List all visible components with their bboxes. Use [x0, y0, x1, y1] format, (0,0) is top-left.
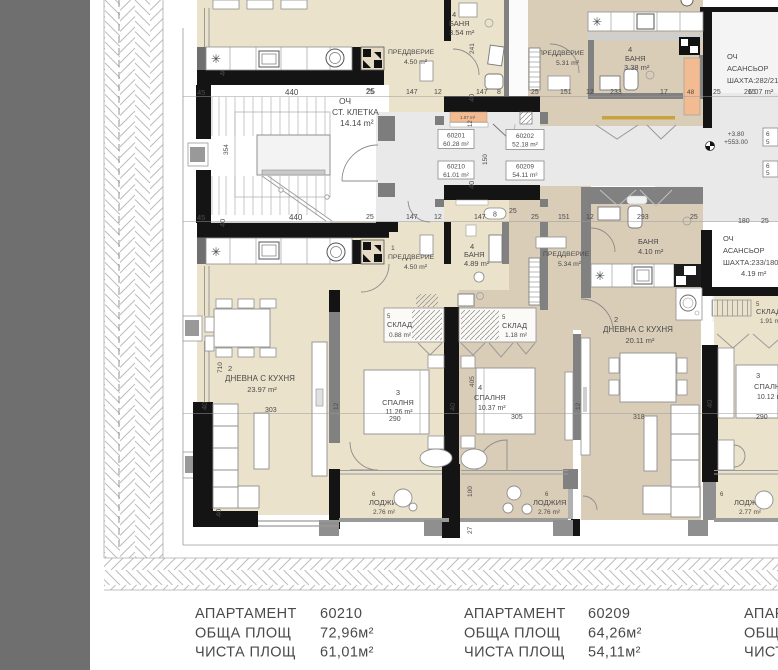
svg-text:12: 12: [434, 89, 442, 96]
svg-text:25: 25: [761, 218, 769, 225]
svg-text:ПРЕДДВЕРИЕ: ПРЕДДВЕРИЕ: [388, 254, 435, 261]
svg-text:БАНЯ: БАНЯ: [625, 54, 646, 63]
svg-text:25: 25: [509, 208, 517, 215]
svg-text:20.11 m²: 20.11 m²: [625, 336, 655, 345]
svg-text:0.88 m²: 0.88 m²: [389, 332, 412, 339]
svg-text:4: 4: [452, 10, 456, 19]
svg-text:150: 150: [482, 154, 489, 165]
svg-text:25: 25: [366, 89, 374, 96]
svg-text:60209: 60209: [516, 164, 534, 171]
svg-text:147: 147: [476, 89, 488, 96]
svg-text:4.50 m²: 4.50 m²: [404, 59, 428, 66]
svg-text:4.19 m²: 4.19 m²: [741, 269, 767, 278]
svg-text:40: 40: [218, 219, 227, 227]
svg-text:АПАРТАМЕНТ: АПАРТАМЕНТ: [195, 606, 297, 622]
svg-text:СПАЛНЯ: СПАЛНЯ: [474, 393, 506, 402]
svg-text:СПАЛНЯ: СПАЛНЯ: [754, 382, 778, 391]
svg-text:215: 215: [744, 89, 756, 96]
svg-text:ДНЕВНА С КУХНЯ: ДНЕВНА С КУХНЯ: [603, 325, 673, 334]
svg-text:290: 290: [756, 414, 768, 421]
svg-text:305: 305: [511, 414, 523, 421]
svg-text:3.38 m²: 3.38 m²: [624, 63, 650, 72]
svg-text:290: 290: [389, 416, 401, 423]
svg-text:СПАЛНЯ: СПАЛНЯ: [382, 398, 414, 407]
svg-text:1.91 m²: 1.91 m²: [760, 318, 778, 325]
svg-text:✳: ✳: [595, 269, 605, 283]
svg-text:25: 25: [713, 89, 721, 96]
svg-text:ЧИСТА ПЛОЩ: ЧИСТА ПЛОЩ: [464, 645, 565, 661]
svg-text:ШАХТА:233/180: ШАХТА:233/180: [723, 258, 778, 267]
svg-text:72,96м²: 72,96м²: [320, 626, 374, 642]
svg-text:АПАРТАМЕНТ: АПАРТАМЕНТ: [464, 606, 566, 622]
svg-text:45: 45: [197, 213, 205, 222]
svg-text:БАНЯ: БАНЯ: [464, 250, 485, 259]
svg-text:4: 4: [628, 45, 632, 54]
svg-text:60210: 60210: [320, 606, 362, 622]
svg-text:25: 25: [690, 214, 698, 221]
svg-text:ОБЩА ПЛОЩ: ОБЩА ПЛОЩ: [195, 626, 292, 642]
svg-text:25: 25: [531, 214, 539, 221]
svg-text:147: 147: [406, 89, 418, 96]
svg-text:27: 27: [467, 526, 474, 534]
svg-text:ОЧ: ОЧ: [727, 52, 738, 61]
svg-text:100: 100: [467, 486, 474, 497]
svg-text:180: 180: [738, 218, 750, 225]
svg-text:54,11м²: 54,11м²: [588, 645, 641, 661]
svg-text:5.34 m²: 5.34 m²: [558, 261, 582, 268]
svg-text:40: 40: [214, 509, 223, 517]
svg-text:2.76 m²: 2.76 m²: [373, 509, 396, 516]
svg-text:23.97 m²: 23.97 m²: [247, 385, 277, 394]
svg-text:АСАНСЬОР: АСАНСЬОР: [727, 64, 769, 73]
svg-text:318: 318: [633, 414, 645, 421]
svg-text:СКЛАД: СКЛАД: [502, 321, 527, 330]
svg-text:БАНЯ: БАНЯ: [449, 19, 470, 28]
svg-text:+553.00: +553.00: [724, 139, 748, 146]
svg-text:5.31 m²: 5.31 m²: [556, 60, 580, 67]
svg-text:4: 4: [478, 383, 482, 392]
svg-text:233: 233: [610, 89, 622, 96]
svg-text:440: 440: [285, 88, 299, 97]
svg-text:147: 147: [406, 214, 418, 221]
svg-text:1: 1: [391, 245, 395, 252]
svg-text:25: 25: [531, 89, 539, 96]
svg-text:11.26 m²: 11.26 m²: [385, 409, 413, 416]
svg-text:40: 40: [705, 400, 714, 408]
svg-text:60.28 m²: 60.28 m²: [443, 141, 469, 148]
svg-text:40: 40: [467, 181, 476, 189]
svg-text:10.12 m²: 10.12 m²: [757, 394, 778, 401]
svg-text:✳: ✳: [592, 15, 602, 29]
svg-text:ОБЩА ПЛОЩ: ОБЩА ПЛОЩ: [744, 626, 778, 642]
svg-text:ЧИСТА ПЛОЩ: ЧИСТА ПЛОЩ: [195, 645, 296, 661]
svg-text:5: 5: [766, 139, 770, 146]
svg-text:61,01м²: 61,01м²: [320, 645, 374, 661]
svg-text:40: 40: [467, 94, 476, 102]
svg-text:60210: 60210: [447, 164, 465, 171]
svg-text:СКЛАД: СКЛАД: [387, 320, 412, 329]
svg-text:25: 25: [366, 214, 374, 221]
svg-text:1.18 m²: 1.18 m²: [505, 332, 528, 339]
svg-text:ОБЩА ПЛОЩ: ОБЩА ПЛОЩ: [464, 626, 561, 642]
svg-text:2: 2: [228, 364, 232, 373]
svg-text:ШАХТА:282/215: ШАХТА:282/215: [727, 76, 778, 85]
svg-text:60209: 60209: [588, 606, 630, 622]
svg-text:АПАРТАМЕНТ: АПАРТАМЕНТ: [744, 606, 778, 622]
svg-text:54.11 m²: 54.11 m²: [512, 172, 538, 179]
svg-text:12: 12: [586, 89, 594, 96]
svg-text:ЧИСТА ПЛОЩ: ЧИСТА ПЛОЩ: [744, 645, 778, 661]
svg-text:40: 40: [448, 403, 457, 411]
svg-text:40: 40: [200, 402, 209, 410]
svg-text:45: 45: [197, 88, 205, 97]
svg-text:4.89 m²: 4.89 m²: [464, 259, 490, 268]
svg-text:ПРЕДДВЕРИЕ: ПРЕДДВЕРИЕ: [538, 50, 585, 57]
svg-text:ДНЕВНА С КУХНЯ: ДНЕВНА С КУХНЯ: [225, 374, 295, 383]
svg-text:ПРЕДДВЕРИЕ: ПРЕДДВЕРИЕ: [543, 251, 590, 258]
svg-text:2.77 m²: 2.77 m²: [739, 509, 762, 516]
svg-text:60202: 60202: [516, 133, 534, 140]
svg-text:17: 17: [660, 89, 668, 96]
svg-text:293: 293: [637, 214, 649, 221]
svg-text:241: 241: [469, 43, 476, 54]
svg-text:3: 3: [756, 371, 760, 380]
svg-text:60201: 60201: [447, 133, 465, 140]
svg-text:8: 8: [493, 212, 497, 219]
svg-text:6: 6: [766, 131, 770, 138]
svg-text:ПРЕДДВЕРИЕ: ПРЕДДВЕРИЕ: [388, 49, 435, 56]
svg-text:4.50 m²: 4.50 m²: [404, 264, 428, 271]
svg-text:10.37 m²: 10.37 m²: [478, 405, 506, 412]
svg-text:СТ. КЛЕТКА: СТ. КЛЕТКА: [332, 107, 379, 117]
svg-text:14.14 m²: 14.14 m²: [340, 118, 374, 128]
svg-text:354: 354: [223, 144, 230, 155]
svg-text:СКЛАД: СКЛАД: [756, 307, 778, 316]
svg-text:12: 12: [468, 120, 474, 127]
svg-text:6: 6: [766, 163, 770, 170]
svg-text:ЛОДЖИЯ: ЛОДЖИЯ: [533, 498, 566, 507]
svg-text:303: 303: [265, 407, 277, 414]
svg-text:52.18 m²: 52.18 m²: [512, 142, 538, 149]
svg-text:147: 147: [474, 214, 486, 221]
svg-text:3: 3: [396, 388, 400, 397]
svg-text:+3.80: +3.80: [728, 131, 745, 138]
svg-text:12: 12: [575, 402, 582, 410]
svg-text:12: 12: [434, 214, 442, 221]
svg-text:8: 8: [497, 89, 501, 96]
svg-text:2: 2: [614, 315, 618, 324]
svg-text:12: 12: [333, 402, 340, 410]
svg-text:1.07 m²: 1.07 m²: [460, 115, 476, 120]
svg-text:405: 405: [469, 376, 476, 387]
svg-text:✳: ✳: [211, 245, 221, 259]
svg-text:48: 48: [687, 89, 695, 96]
svg-text:12: 12: [586, 214, 594, 221]
svg-text:АСАНСЬОР: АСАНСЬОР: [723, 246, 765, 255]
svg-text:5: 5: [766, 170, 770, 177]
svg-text:61.01 m²: 61.01 m²: [443, 172, 469, 179]
svg-text:4.10 m²: 4.10 m²: [638, 247, 664, 256]
svg-text:64,26м²: 64,26м²: [588, 626, 642, 642]
svg-text:3.54 m²: 3.54 m²: [449, 28, 475, 37]
svg-text:151: 151: [560, 89, 572, 96]
svg-text:✳: ✳: [211, 52, 221, 66]
svg-text:2.76 m²: 2.76 m²: [538, 509, 561, 516]
svg-text:БАНЯ: БАНЯ: [638, 237, 659, 246]
svg-text:710: 710: [217, 362, 224, 373]
svg-text:151: 151: [558, 214, 570, 221]
svg-text:ОЧ: ОЧ: [339, 96, 351, 106]
svg-text:440: 440: [289, 213, 303, 222]
svg-text:ОЧ: ОЧ: [723, 234, 734, 243]
